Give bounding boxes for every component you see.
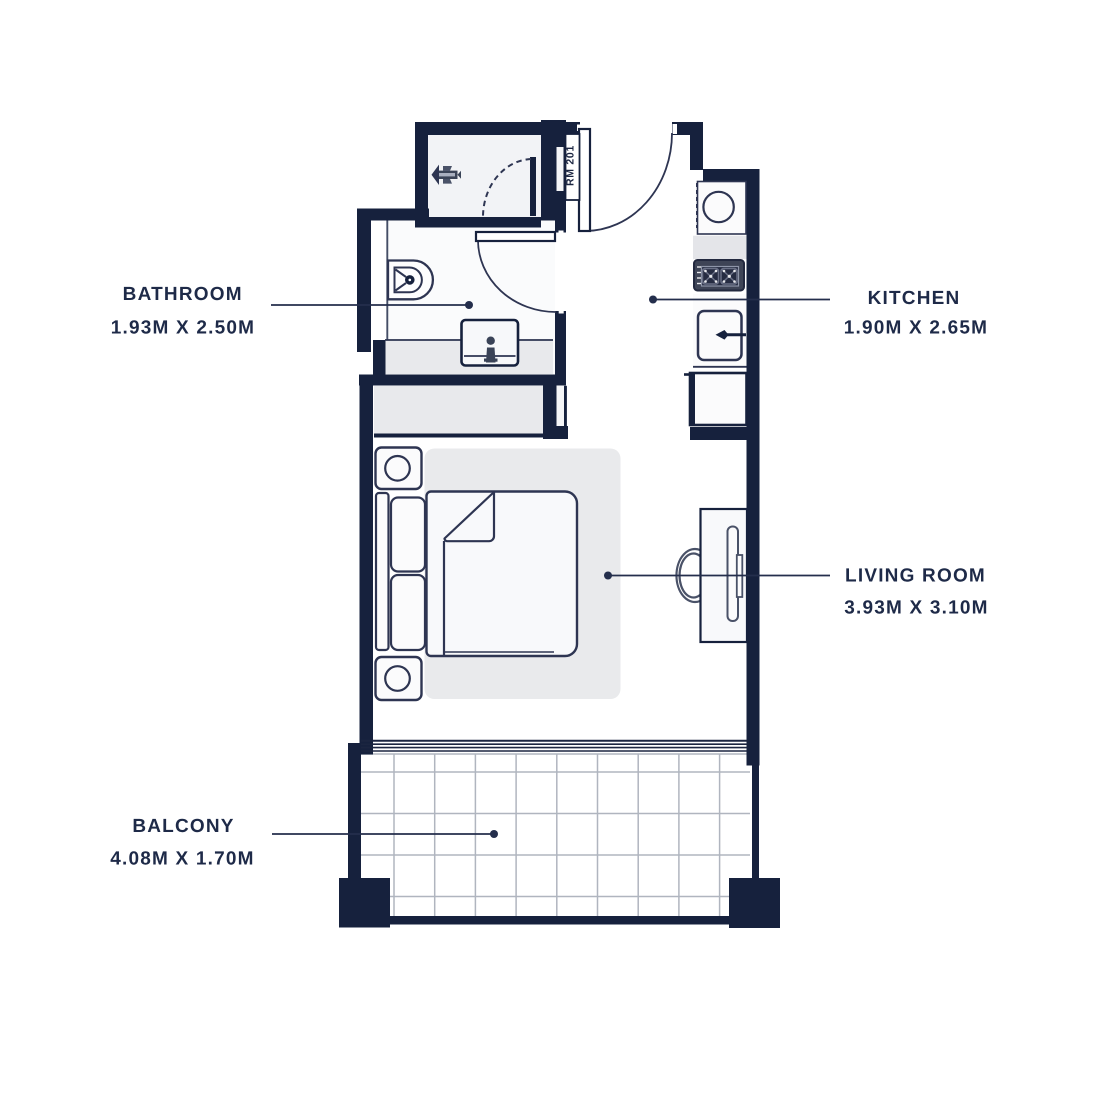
svg-text:RM 201: RM 201 (565, 145, 577, 186)
svg-text:1.90M X 2.65M: 1.90M X 2.65M (844, 318, 988, 339)
svg-text:1.93M X 2.50M: 1.93M X 2.50M (111, 318, 255, 339)
svg-text:4.08M X 1.70M: 4.08M X 1.70M (110, 849, 254, 870)
svg-text:KITCHEN: KITCHEN (868, 288, 961, 309)
svg-text:BATHROOM: BATHROOM (123, 284, 243, 305)
svg-text:3.93M X 3.10M: 3.93M X 3.10M (844, 598, 988, 619)
svg-text:LIVING ROOM: LIVING ROOM (845, 566, 986, 587)
svg-text:BALCONY: BALCONY (132, 816, 234, 837)
